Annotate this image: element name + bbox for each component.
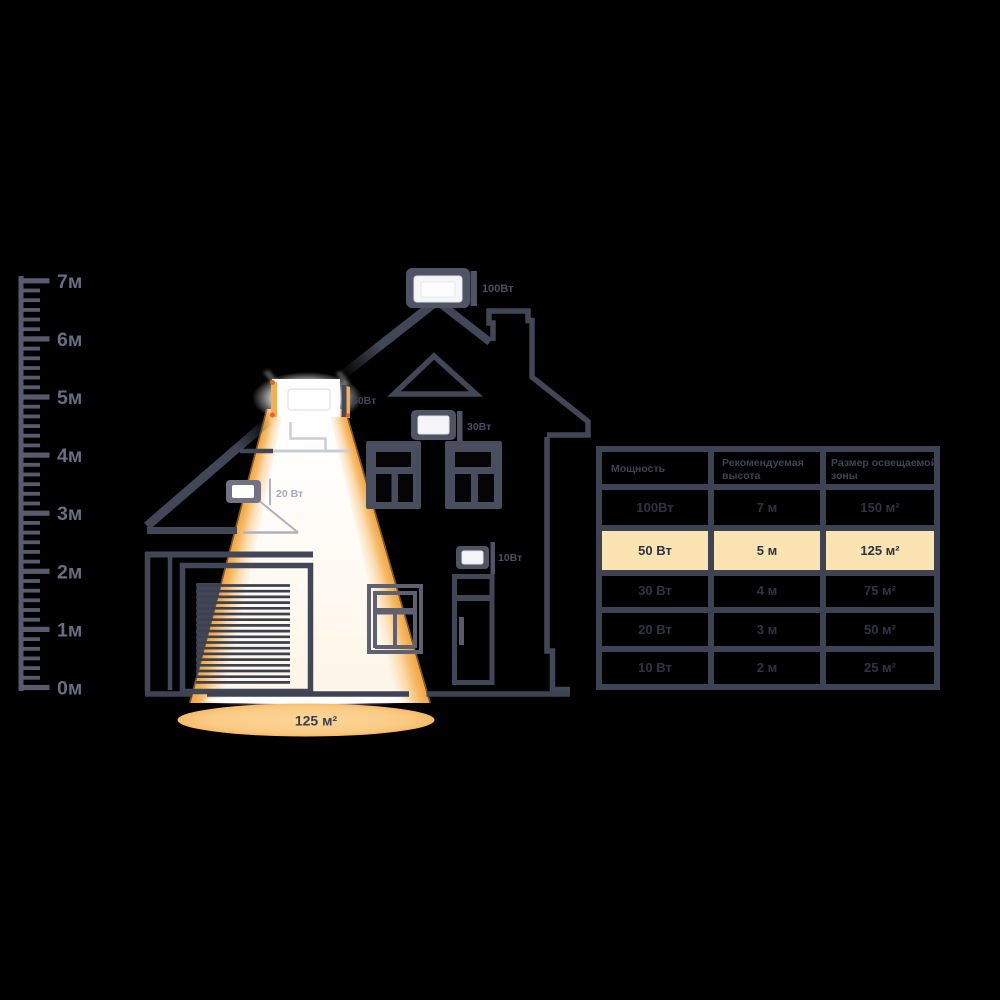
svg-text:4м: 4м — [57, 445, 82, 467]
svg-text:4 м: 4 м — [757, 583, 777, 598]
svg-text:зоны: зоны — [831, 470, 858, 482]
svg-text:3м: 3м — [57, 503, 82, 525]
svg-text:2 м: 2 м — [757, 660, 777, 675]
svg-text:7м: 7м — [57, 271, 82, 293]
svg-text:6м: 6м — [57, 329, 82, 351]
svg-text:3 м: 3 м — [757, 622, 777, 637]
svg-text:7 м: 7 м — [757, 500, 777, 515]
svg-text:10 Вт: 10 Вт — [638, 660, 672, 675]
svg-text:50 Вт: 50 Вт — [638, 543, 672, 558]
svg-text:20 Вт: 20 Вт — [276, 488, 303, 500]
svg-text:50Вт: 50Вт — [352, 395, 376, 407]
svg-text:1м: 1м — [57, 619, 82, 641]
svg-text:30Вт: 30Вт — [467, 421, 491, 433]
svg-text:10Вт: 10Вт — [498, 552, 522, 564]
svg-text:75 м²: 75 м² — [864, 583, 897, 598]
svg-text:0м: 0м — [57, 678, 82, 700]
svg-text:50 м²: 50 м² — [864, 622, 897, 637]
svg-text:Рекомендуемая: Рекомендуемая — [722, 457, 804, 469]
svg-text:20 Вт: 20 Вт — [638, 622, 672, 637]
svg-text:25 м²: 25 м² — [864, 660, 897, 675]
svg-text:2м: 2м — [57, 561, 82, 583]
svg-text:100Вт: 100Вт — [482, 283, 514, 295]
svg-text:125 м²: 125 м² — [860, 543, 900, 558]
svg-text:Размер освещаемой: Размер освещаемой — [831, 457, 937, 469]
svg-text:100Вт: 100Вт — [636, 500, 673, 515]
svg-text:125 м²: 125 м² — [295, 713, 338, 729]
svg-text:5м: 5м — [57, 387, 82, 409]
svg-text:150 м²: 150 м² — [860, 500, 900, 515]
svg-text:высота: высота — [722, 470, 761, 482]
svg-text:Мощность: Мощность — [611, 463, 666, 475]
svg-text:5 м: 5 м — [757, 543, 777, 558]
svg-text:30 Вт: 30 Вт — [638, 583, 672, 598]
